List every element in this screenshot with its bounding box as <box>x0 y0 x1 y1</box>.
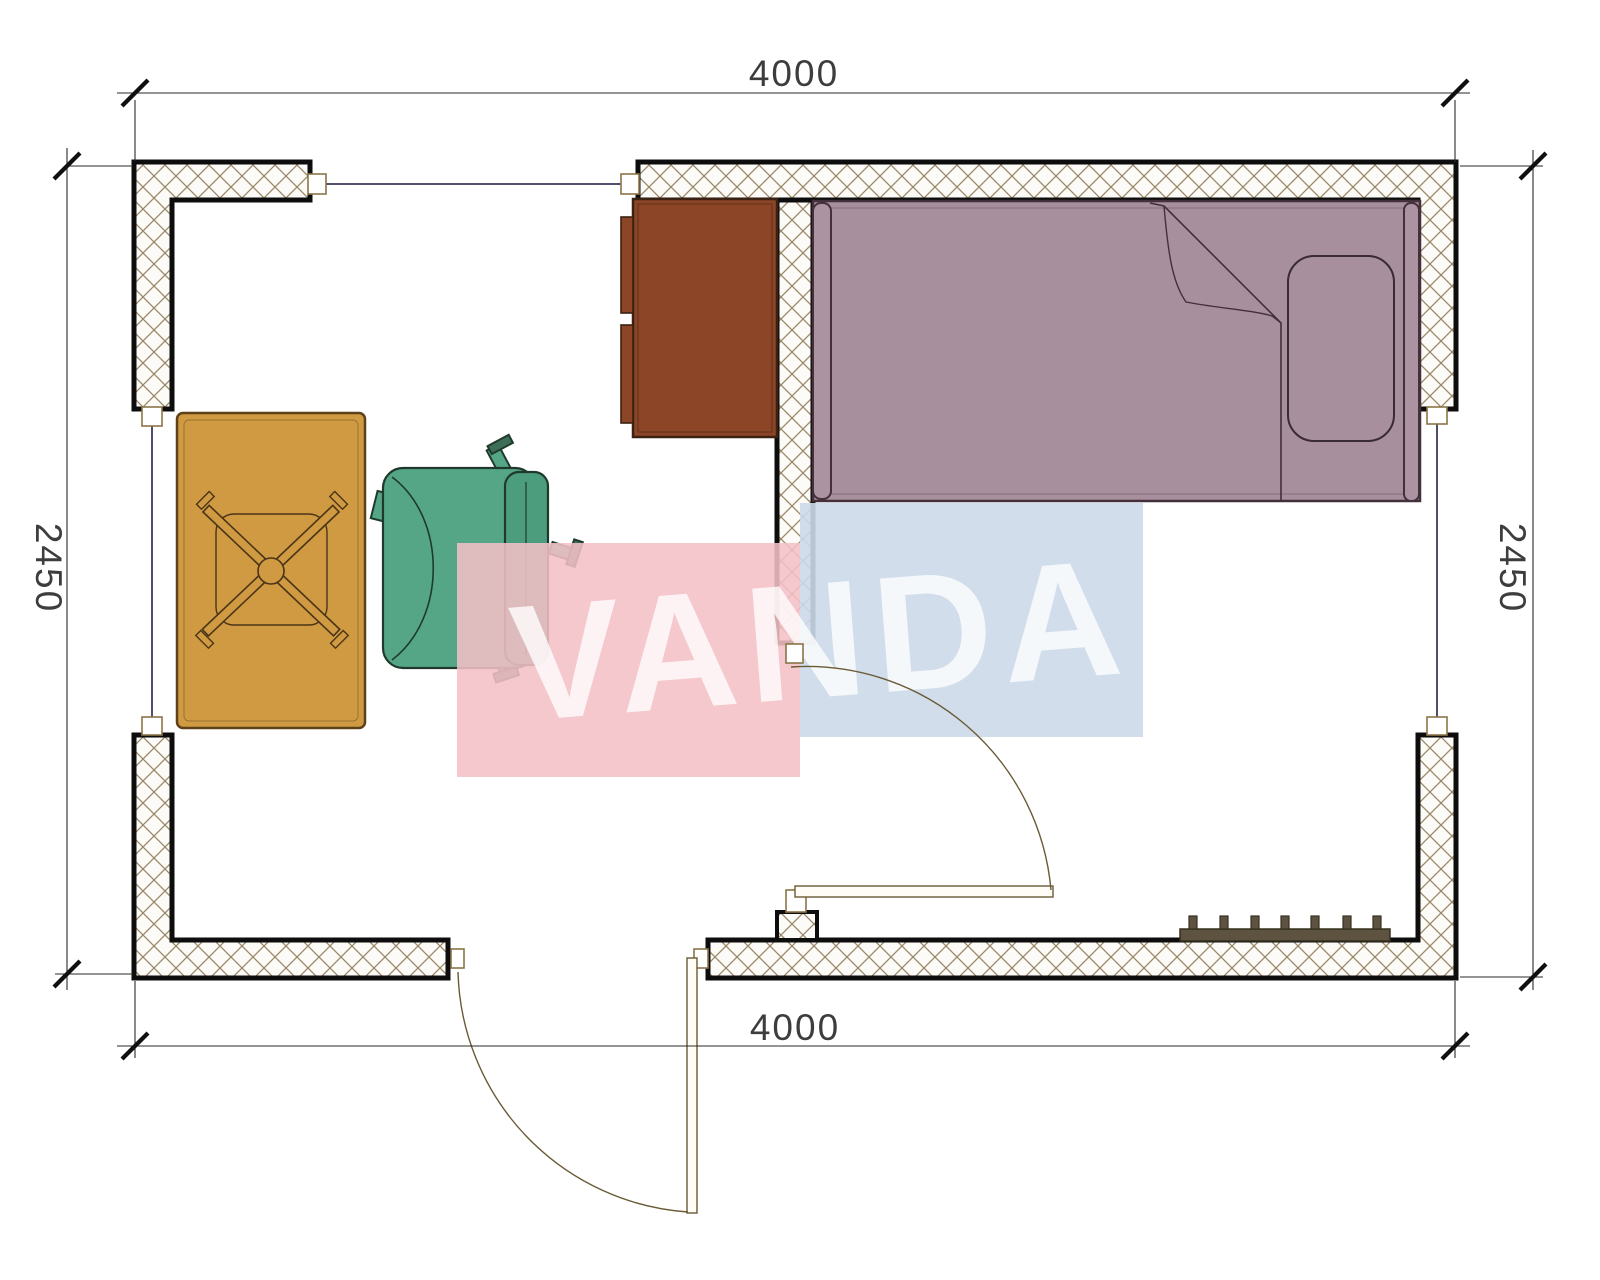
watermark: VANDA <box>457 503 1143 777</box>
dimension-right: 2450 <box>1460 150 1546 990</box>
door-jamb <box>451 949 464 968</box>
dimension-left: 2450 <box>28 148 133 990</box>
window-jamb <box>1427 407 1447 424</box>
radiator-fin <box>1220 916 1228 929</box>
radiator-fin <box>1311 916 1319 929</box>
window-jamb <box>621 174 639 194</box>
entrance-door-leaf <box>687 958 697 1213</box>
radiator-bar <box>1180 929 1390 941</box>
wall-bottom-left <box>134 735 448 978</box>
interior-door-leaf <box>795 886 1053 897</box>
wardrobe-body <box>633 199 777 437</box>
window-jamb <box>308 174 326 194</box>
wall-door-pier <box>777 912 817 940</box>
radiator-fin <box>1373 916 1381 929</box>
door-jamb <box>786 644 803 663</box>
bed-head-rail <box>1404 203 1419 501</box>
pillow <box>1288 256 1394 441</box>
wardrobe-door-strip <box>621 325 633 423</box>
dimension-label-left: 2450 <box>28 523 69 613</box>
dimension-label-bottom: 4000 <box>750 1007 840 1048</box>
dimension-top: 4000 <box>117 53 1470 162</box>
floor-plan-canvas: VANDA 4000 4000 2450 <box>0 0 1600 1280</box>
wardrobe-door-strip <box>621 217 633 313</box>
radiator-fin <box>1189 916 1197 929</box>
window-jamb <box>142 407 162 426</box>
radiator-fins <box>1189 916 1381 929</box>
wardrobe <box>621 199 777 437</box>
dimension-bottom: 4000 <box>117 981 1470 1059</box>
entrance-door-swing-arc <box>458 972 688 1212</box>
window-jamb <box>142 717 162 735</box>
entrance-door <box>451 949 708 1213</box>
radiator <box>1180 916 1390 941</box>
table-cross-hub <box>258 558 284 584</box>
bed-foot-rail <box>813 203 831 499</box>
table <box>177 413 365 728</box>
window-jamb <box>1427 717 1447 735</box>
bed <box>813 201 1420 501</box>
radiator-fin <box>1281 916 1289 929</box>
dimension-label-right: 2450 <box>1492 523 1533 613</box>
radiator-fin <box>1343 916 1351 929</box>
dimension-label-top: 4000 <box>749 53 839 94</box>
radiator-fin <box>1251 916 1259 929</box>
wall-top-left <box>134 162 310 409</box>
floor-plan-page: VANDA 4000 4000 2450 <box>0 0 1600 1280</box>
